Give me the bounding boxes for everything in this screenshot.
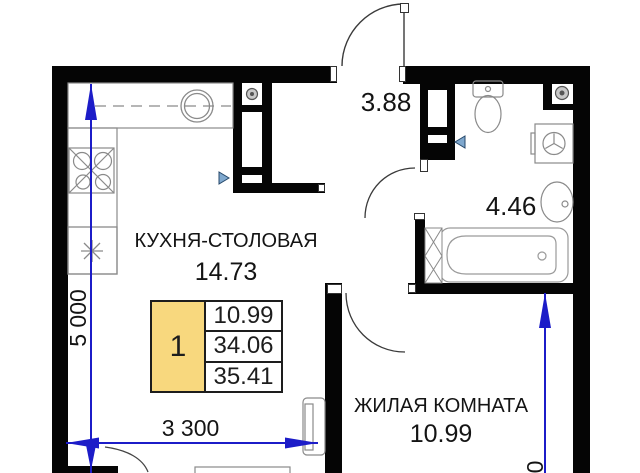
jamb-bath-door-top <box>420 159 428 172</box>
vent-icon-shaft <box>247 89 258 100</box>
floor-plan: КУХНЯ-СТОЛОВАЯ 14.73 3.88 4.46 ЖИЛАЯ КОМ… <box>0 0 640 473</box>
area-value-main: 34.06 <box>206 332 281 362</box>
dimension-right-label: 0 <box>524 447 546 473</box>
bottom-window-frame <box>195 467 290 473</box>
living-room-name: ЖИЛАЯ КОМНАТА <box>338 396 544 417</box>
entrance-door-cap <box>400 3 409 13</box>
bottom-door-arc <box>105 447 148 472</box>
washing-machine-icon <box>531 124 573 163</box>
jamb-shaft-wall-end <box>318 184 325 192</box>
bathtub-icon <box>440 228 568 282</box>
jamb-entrance-left <box>330 66 337 82</box>
bathroom-door-arc <box>365 168 415 218</box>
hatched-duct <box>425 228 442 283</box>
apartment-info-card: 1 10.99 34.06 35.41 <box>150 300 283 393</box>
areas-column: 10.99 34.06 35.41 <box>206 302 281 391</box>
opening-marker-bathroom <box>455 136 465 148</box>
rooms-count: 1 <box>170 330 187 364</box>
jamb-bath-door-bottom <box>414 213 425 220</box>
jamb-entrance-right <box>399 66 406 82</box>
jamb-living-door-right <box>408 284 416 293</box>
toilet-icon <box>473 81 503 133</box>
hallway-area: 3.88 <box>344 89 428 116</box>
entrance-door-arc <box>342 4 404 66</box>
star-burst-icon <box>68 227 117 274</box>
dimension-bottom-label: 3 300 <box>128 417 253 441</box>
area-value-living: 10.99 <box>206 302 281 332</box>
dimension-left-label: 5 000 <box>67 273 91 363</box>
living-room-area: 10.99 <box>338 421 544 447</box>
area-value-total: 35.41 <box>206 363 281 391</box>
vent-icon-bathroom <box>556 87 569 100</box>
kitchen-name: КУХНЯ-СТОЛОВАЯ <box>126 231 326 252</box>
opening-marker-kitchen <box>219 172 229 184</box>
living-room-door-arc <box>346 293 405 352</box>
kitchen-area: 14.73 <box>126 259 326 285</box>
bathroom-area: 4.46 <box>468 193 554 220</box>
balcony-door-frame <box>303 398 325 455</box>
rooms-count-cell: 1 <box>152 302 206 391</box>
jamb-living-door-left <box>327 284 342 294</box>
